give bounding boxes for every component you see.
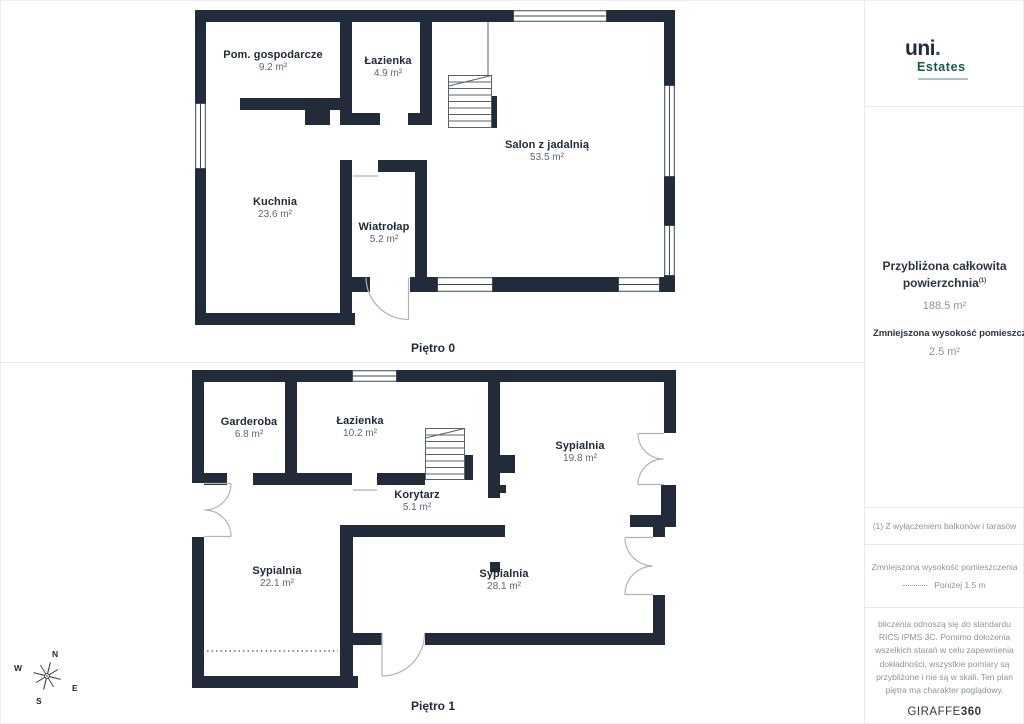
room-label-sypialnia-198: Sypialnia 19.8 m² — [555, 440, 604, 464]
floorplan-page: Pom. gospodarcze 9.2 m² Łazienka 4.9 m² … — [0, 0, 1024, 724]
disclaimer-text: bliczenia odnoszą się do standardu RICS … — [874, 618, 1015, 697]
dotted-line-sample — [903, 585, 927, 586]
legend-title: Zmniejszona wysokość pomieszczenia — [872, 562, 1018, 572]
floor1-stairs-icon — [426, 429, 465, 480]
info-sidebar: uni. Estates Przybliżona całkowita powie… — [865, 0, 1024, 724]
compass-south-label: S — [36, 696, 42, 706]
compass-east-label: E — [72, 683, 78, 693]
compass-west-label: W — [14, 663, 23, 673]
footnote-section: (1) Z wyłączeniem balkonów i tarasów — [865, 508, 1024, 545]
total-area-value: 188.5 m² — [873, 300, 1016, 312]
giraffe360-watermark: GIRAFFE360 — [874, 706, 1015, 718]
logo-name: uni — [905, 37, 935, 60]
room-label-korytarz: Korytarz 5.1 m² — [394, 489, 439, 513]
room-label-salon: Salon z jadalnią 53.5 m² — [505, 139, 589, 163]
reduced-height-label: Zmniejszona wysokość pomieszczenia — [873, 328, 1016, 339]
panel-divider-horizontal — [0, 362, 864, 363]
footnote-marker: (1) — [979, 278, 986, 284]
floor0-caption: Piętro 0 — [411, 341, 455, 355]
room-label-lazienka-0: Łazienka 4.9 m² — [364, 55, 411, 79]
compass-icon: N E S W — [12, 646, 82, 710]
room-label-sypialnia-281: Sypialnia 28.1 m² — [479, 568, 528, 592]
total-area-label: Przybliżona całkowita powierzchnia(1) — [873, 258, 1016, 293]
floor1-caption: Piętro 1 — [411, 699, 455, 713]
room-label-garderoba: Garderoba 6.8 m² — [221, 416, 278, 440]
floor0-stairs-icon — [449, 22, 492, 128]
logo-subtitle: Estates — [917, 61, 968, 74]
floor1-windows — [352, 370, 397, 382]
summary-section: Przybliżona całkowita powierzchnia(1) 18… — [865, 107, 1024, 508]
room-label-sypialnia-221: Sypialnia 22.1 m² — [252, 565, 301, 589]
room-label-wiatrolap: Wiatrołap 5.2 m² — [359, 221, 410, 245]
logo-tagline — [918, 78, 968, 80]
logo-section: uni. Estates — [865, 0, 1024, 107]
uni-estates-logo: uni. Estates — [905, 38, 968, 80]
logo-dot: . — [935, 37, 940, 60]
legend-item: Poniżej 1.5 m — [934, 580, 986, 590]
floor0-door-arcs — [353, 176, 409, 320]
room-label-lazienka-1: Łazienka 10.2 m² — [336, 415, 383, 439]
reduced-height-value: 2.5 m² — [873, 346, 1016, 358]
disclaimer-section: bliczenia odnoszą się do standardu RICS … — [865, 608, 1024, 724]
room-label-kuchnia: Kuchnia 23.6 m² — [253, 196, 297, 220]
legend-section: Zmniejszona wysokość pomieszczenia Poniż… — [865, 545, 1024, 608]
compass-north-label: N — [52, 649, 58, 659]
room-label-pom-gospodarcze: Pom. gospodarcze 9.2 m² — [223, 49, 322, 73]
footnote-text: (1) Z wyłączeniem balkonów i tarasów — [873, 521, 1017, 531]
